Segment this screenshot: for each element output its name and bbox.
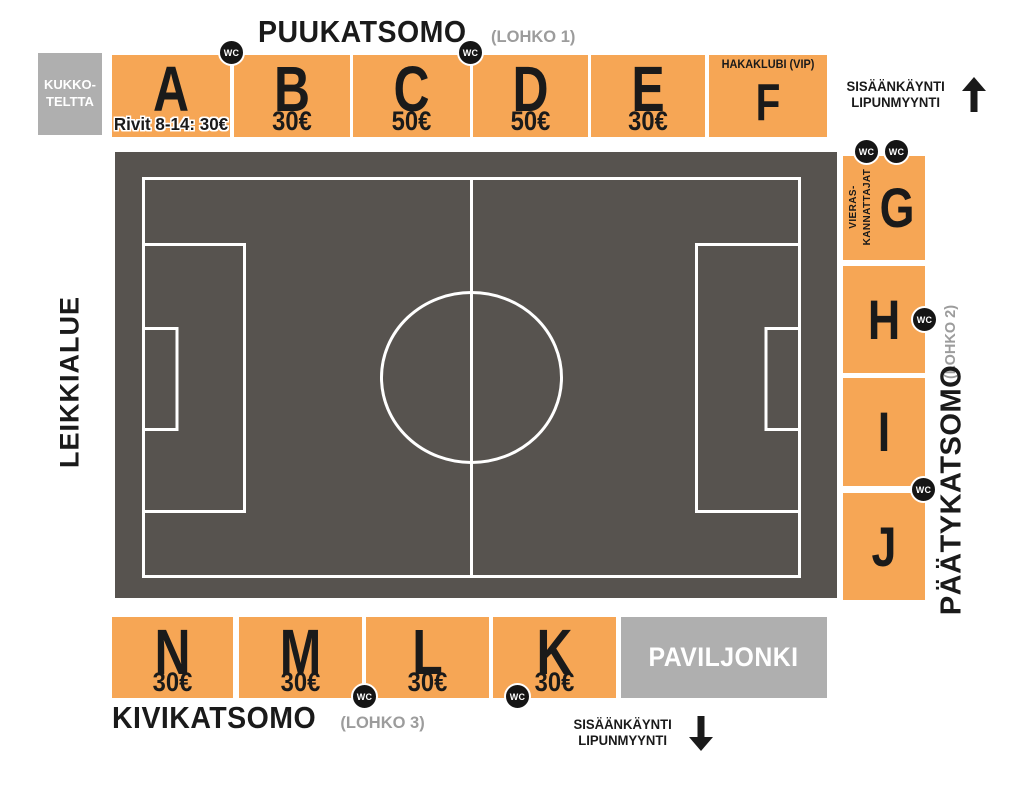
section-F[interactable]: HAKAKLUBI (VIP) F: [709, 55, 827, 137]
stand-title-kivikatsomo: KIVIKATSOMO (LOHKO 3): [112, 700, 425, 736]
section-M[interactable]: M 30€: [239, 617, 362, 698]
wc-icon: WC: [457, 39, 484, 66]
vieras-kannattajat-label: VIERAS- KANNATTAJAT: [847, 169, 875, 246]
entrance-bottom: SISÄÄNKÄYNTI LIPUNMYYNTI: [572, 714, 715, 752]
stand-name-top: PUUKATSOMO: [258, 14, 466, 50]
section-I[interactable]: I: [843, 378, 925, 486]
kukko-teltta-line2: TELTTA: [46, 94, 94, 109]
stadium-seating-map: PUUKATSOMO (LOHKO 1) KUKKO- TELTTA A Riv…: [0, 0, 1024, 793]
section-N[interactable]: N 30€: [112, 617, 233, 698]
section-price: 30€: [598, 108, 698, 135]
stand-name-bottom: KIVIKATSOMO: [112, 700, 316, 736]
area-kukko-teltta: KUKKO- TELTTA: [38, 53, 102, 135]
kukko-teltta-line1: KUKKO-: [44, 77, 96, 92]
section-letter: F: [722, 77, 814, 129]
section-price: 30€: [246, 669, 354, 696]
section-B[interactable]: B 30€: [234, 55, 350, 137]
section-letter: A: [125, 57, 217, 121]
section-letter: J: [851, 519, 917, 575]
section-price: 30€: [241, 108, 343, 135]
section-letter: I: [851, 404, 917, 460]
stand-block-top: (LOHKO 1): [491, 28, 575, 46]
arrow-down-icon: [687, 714, 715, 752]
leikkialue-label: LEIKKIALUE: [55, 296, 86, 468]
hakaklubi-vip-label: HAKAKLUBI (VIP): [712, 59, 824, 71]
football-pitch: [115, 152, 837, 598]
wc-icon: WC: [883, 138, 910, 165]
wc-icon: WC: [504, 683, 531, 710]
arrow-up-icon: [960, 76, 988, 114]
entrance-top-label: SISÄÄNKÄYNTI LIPUNMYYNTI: [847, 79, 945, 111]
stand-block-bottom: (LOHKO 3): [340, 714, 424, 732]
entrance-top: SISÄÄNKÄYNTI LIPUNMYYNTI: [845, 76, 988, 114]
section-L[interactable]: L 30€: [366, 617, 489, 698]
stand-title-paatykatsomo: PÄÄTYKATSOMO: [936, 365, 969, 615]
section-E[interactable]: E 30€: [591, 55, 705, 137]
wc-icon: WC: [910, 476, 937, 503]
section-price: 50€: [480, 108, 581, 135]
section-A[interactable]: A Rivit 8-14: 30€: [112, 55, 230, 137]
section-letter: H: [851, 292, 917, 348]
wc-icon: WC: [853, 138, 880, 165]
wc-icon: WC: [911, 306, 938, 333]
section-price: 30€: [119, 669, 225, 696]
section-price: 30€: [373, 669, 481, 696]
section-C[interactable]: C 50€: [353, 55, 470, 137]
section-price: 50€: [360, 108, 463, 135]
pitch-background: [115, 152, 837, 598]
stand-title-puukatsomo: PUUKATSOMO (LOHKO 1): [258, 14, 575, 50]
wc-icon: WC: [218, 39, 245, 66]
wc-icon: WC: [351, 683, 378, 710]
area-paviljonki: PAVILJONKI: [621, 617, 827, 698]
section-D[interactable]: D 50€: [473, 55, 588, 137]
entrance-bottom-label: SISÄÄNKÄYNTI LIPUNMYYNTI: [574, 717, 672, 749]
section-J[interactable]: J: [843, 493, 925, 600]
section-price: Rivit 8-14: 30€: [114, 116, 228, 134]
